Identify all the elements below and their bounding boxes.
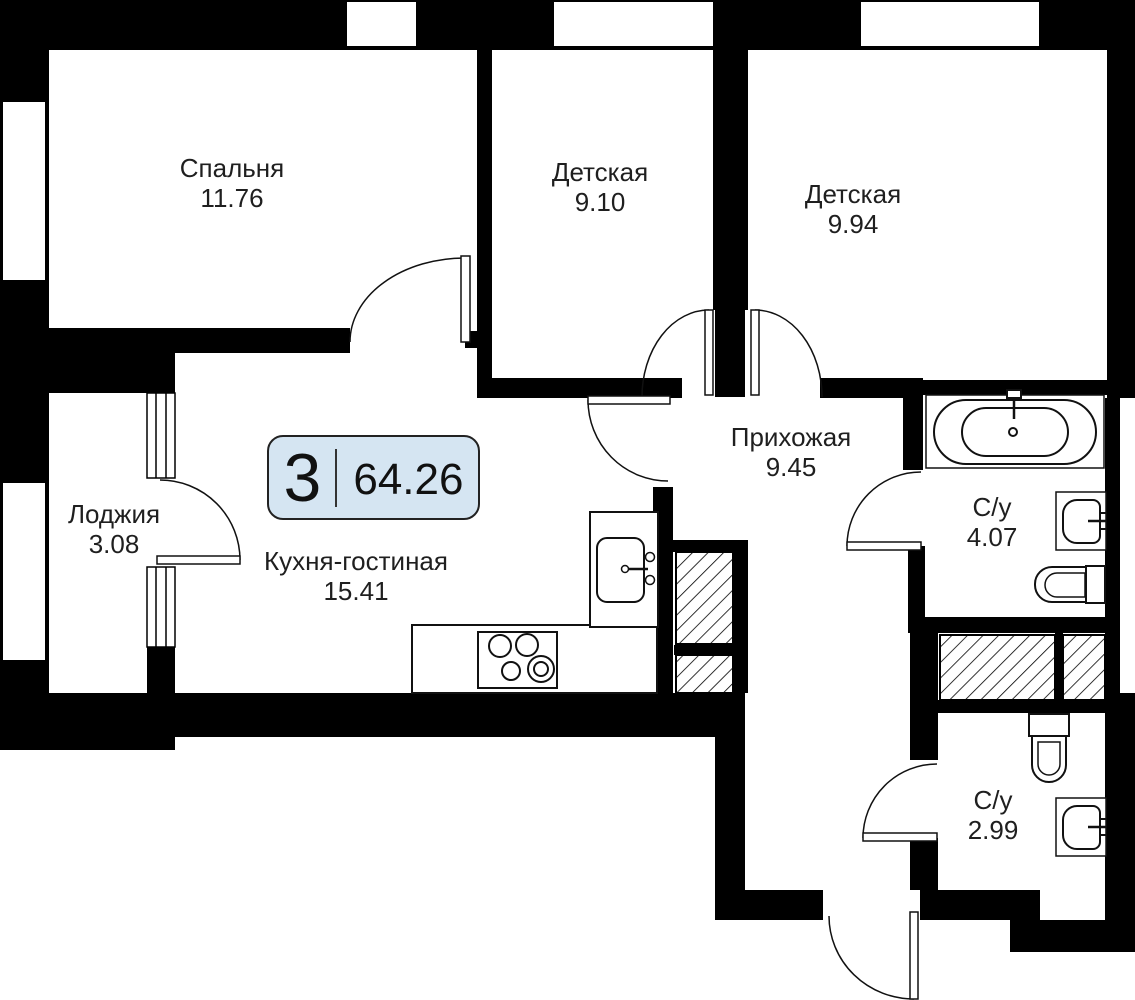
wall-segment xyxy=(745,890,823,920)
room-name: С/у xyxy=(967,492,1018,522)
window xyxy=(347,2,416,46)
wall-segment xyxy=(1105,398,1120,693)
vent-shaft-hatch xyxy=(1063,635,1105,700)
wall-segment xyxy=(1105,693,1135,952)
room-area: 2.99 xyxy=(968,815,1019,845)
door-arc xyxy=(588,400,668,481)
room-name: Кухня-гостиная xyxy=(264,546,448,576)
badge-rooms-count: 3 xyxy=(284,444,322,512)
wall-segment xyxy=(477,378,682,398)
room-label-hallway: Прихожая 9.45 xyxy=(731,422,851,482)
room-name: Лоджия xyxy=(68,499,160,529)
wall-segment xyxy=(1107,0,1135,398)
door-arc xyxy=(755,310,822,397)
room-label-loggia: Лоджия 3.08 xyxy=(68,499,160,559)
wall-segment xyxy=(713,50,748,310)
stove-icon xyxy=(478,632,557,688)
room-label-kids-1: Детская 9.10 xyxy=(552,157,648,217)
wall-segment xyxy=(477,50,492,380)
door-arc xyxy=(863,764,937,838)
room-area: 9.94 xyxy=(805,209,901,239)
wall-segment xyxy=(1010,920,1135,952)
door-leaf xyxy=(705,310,713,395)
wall-segment xyxy=(733,540,748,693)
bathtub-icon xyxy=(926,390,1104,468)
door-leaf xyxy=(910,912,918,999)
wall-segment xyxy=(920,890,1040,920)
wall-segment xyxy=(715,737,745,920)
wall-segment xyxy=(47,328,350,353)
door-arc xyxy=(829,916,914,999)
wall-segment xyxy=(147,647,175,693)
room-name: Прихожая xyxy=(731,422,851,452)
wall-segment xyxy=(1055,633,1063,702)
wall-segment xyxy=(910,633,938,760)
door-leaf xyxy=(157,556,240,564)
room-label-bathroom-1: С/у 4.07 xyxy=(967,492,1018,552)
wall-sink-icon xyxy=(1056,492,1106,550)
room-label-kitchen: Кухня-гостиная 15.41 xyxy=(264,546,448,606)
room-area: 4.07 xyxy=(967,522,1018,552)
vent-shaft-hatch xyxy=(676,552,733,644)
apartment-badge: 3 64.26 xyxy=(267,435,480,520)
wall-segment xyxy=(674,645,735,655)
wall-segment xyxy=(670,540,735,552)
room-name: С/у xyxy=(968,785,1019,815)
badge-divider xyxy=(335,449,337,507)
door-arc xyxy=(847,472,921,546)
floor-plan: Спальня 11.76 Детская 9.10 Детская 9.94 … xyxy=(0,0,1135,1000)
vent-shaft-hatch xyxy=(940,635,1055,700)
toilet-icon xyxy=(1029,714,1069,782)
room-name: Детская xyxy=(805,179,901,209)
door-leaf xyxy=(588,396,670,404)
room-area: 9.45 xyxy=(731,452,851,482)
room-name: Спальня xyxy=(180,153,284,183)
wall-segment xyxy=(938,700,1105,713)
room-label-kids-2: Детская 9.94 xyxy=(805,179,901,239)
door-leaf xyxy=(751,310,759,395)
window xyxy=(3,102,45,280)
room-area: 11.76 xyxy=(180,183,284,213)
room-label-bathroom-2: С/у 2.99 xyxy=(968,785,1019,845)
wall-segment xyxy=(0,693,175,750)
badge-total-area: 64.26 xyxy=(353,454,463,502)
room-area: 15.41 xyxy=(264,576,448,606)
wall-segment xyxy=(0,353,175,393)
room-area: 9.10 xyxy=(552,187,648,217)
room-name: Детская xyxy=(552,157,648,187)
door-leaf xyxy=(461,256,470,342)
wall-segment xyxy=(175,693,745,737)
window xyxy=(554,2,713,46)
vent-shaft-hatch xyxy=(676,655,733,693)
wall-sink-icon xyxy=(1056,798,1106,856)
floor-plan-drawing xyxy=(0,0,1135,1000)
door-arc xyxy=(350,258,465,342)
window xyxy=(861,2,1039,46)
wall-segment xyxy=(908,617,1120,633)
wall-segment xyxy=(903,382,923,470)
door-leaf xyxy=(863,833,937,841)
room-area: 3.08 xyxy=(68,529,160,559)
door-arc xyxy=(160,480,240,560)
toilet-icon xyxy=(1035,566,1105,603)
door-leaf xyxy=(847,542,921,550)
wall-segment xyxy=(910,838,938,890)
room-label-bedroom: Спальня 11.76 xyxy=(180,153,284,213)
wall-segment xyxy=(715,310,745,397)
window xyxy=(3,483,45,660)
